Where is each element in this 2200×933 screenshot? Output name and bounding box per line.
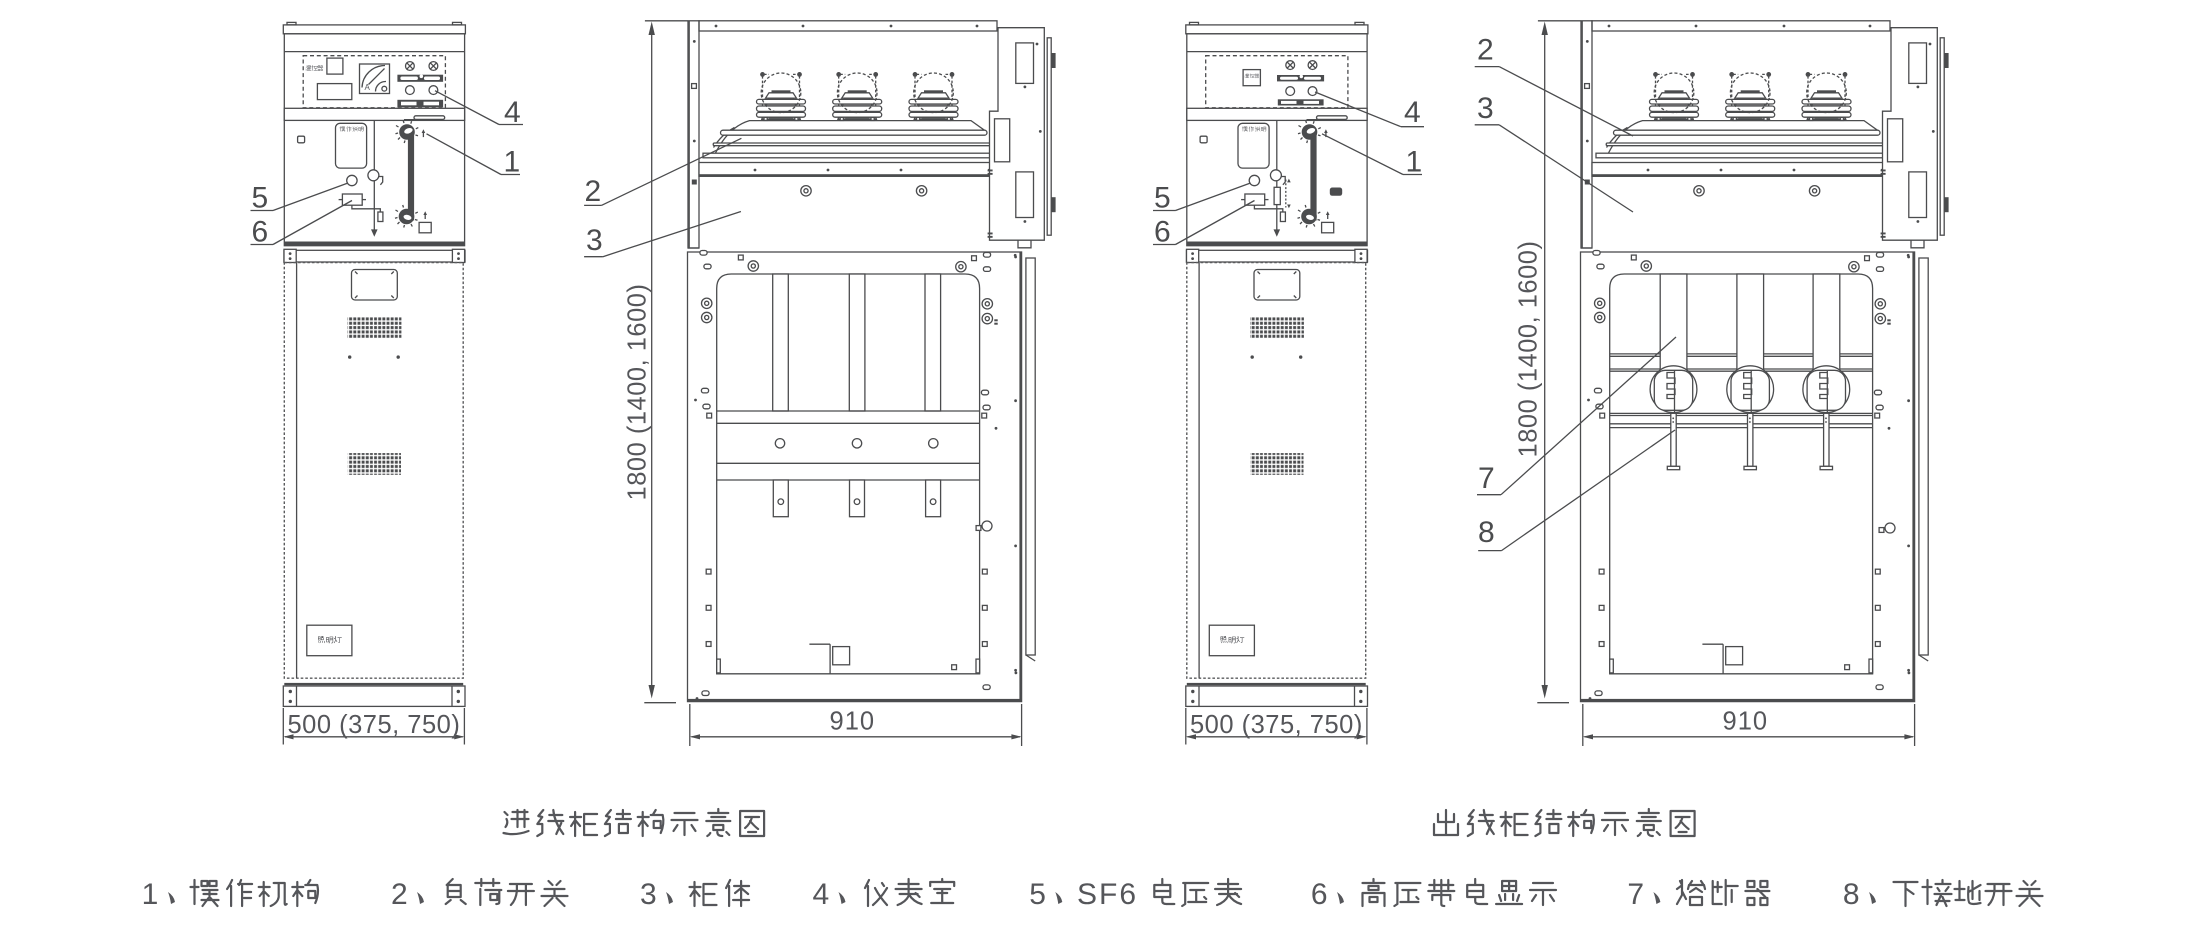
svg-text:7: 7	[1478, 462, 1495, 495]
svg-text:2: 2	[585, 175, 602, 208]
svg-text:1800 (1400, 1600): 1800 (1400, 1600)	[624, 284, 652, 501]
svg-text:5: 5	[252, 182, 269, 215]
svg-text:4: 4	[813, 878, 830, 911]
svg-text:3: 3	[586, 224, 603, 257]
svg-text:3: 3	[1477, 92, 1494, 125]
svg-text:1800 (1400, 1600): 1800 (1400, 1600)	[1515, 241, 1543, 458]
svg-text:A: A	[365, 83, 371, 92]
svg-text:6: 6	[252, 216, 269, 249]
svg-text:2: 2	[1477, 34, 1494, 67]
svg-text:1: 1	[142, 878, 159, 911]
svg-text:4: 4	[1404, 96, 1421, 129]
svg-text:6: 6	[1154, 216, 1171, 249]
svg-text:2: 2	[391, 878, 408, 911]
svg-text:5: 5	[1029, 878, 1046, 911]
svg-text:1: 1	[504, 146, 521, 179]
svg-text:7: 7	[1627, 878, 1644, 911]
svg-text:5: 5	[1154, 182, 1171, 215]
svg-text:8: 8	[1843, 878, 1860, 911]
svg-text:8: 8	[1478, 516, 1495, 549]
svg-text:SF6: SF6	[1077, 878, 1138, 911]
svg-text:1: 1	[1406, 146, 1423, 179]
svg-text:3: 3	[640, 878, 657, 911]
svg-text:6: 6	[1311, 878, 1328, 911]
